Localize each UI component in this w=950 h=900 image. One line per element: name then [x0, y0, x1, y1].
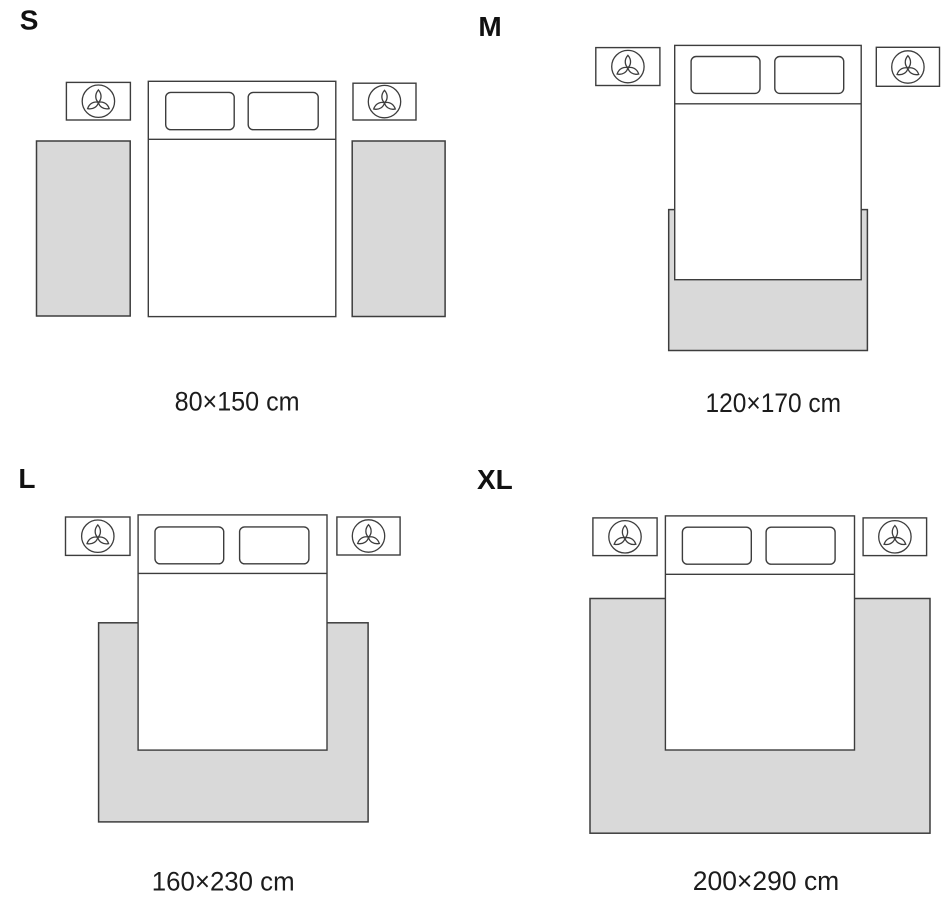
svg-text:M: M	[478, 11, 501, 42]
svg-text:160×230 cm: 160×230 cm	[152, 867, 295, 897]
svg-text:200×290 cm: 200×290 cm	[693, 866, 840, 896]
svg-text:80×150 cm: 80×150 cm	[175, 387, 300, 417]
svg-text:L: L	[18, 463, 35, 494]
svg-text:S: S	[20, 5, 39, 36]
svg-text:XL: XL	[477, 464, 513, 495]
svg-text:120×170 cm: 120×170 cm	[706, 388, 842, 418]
